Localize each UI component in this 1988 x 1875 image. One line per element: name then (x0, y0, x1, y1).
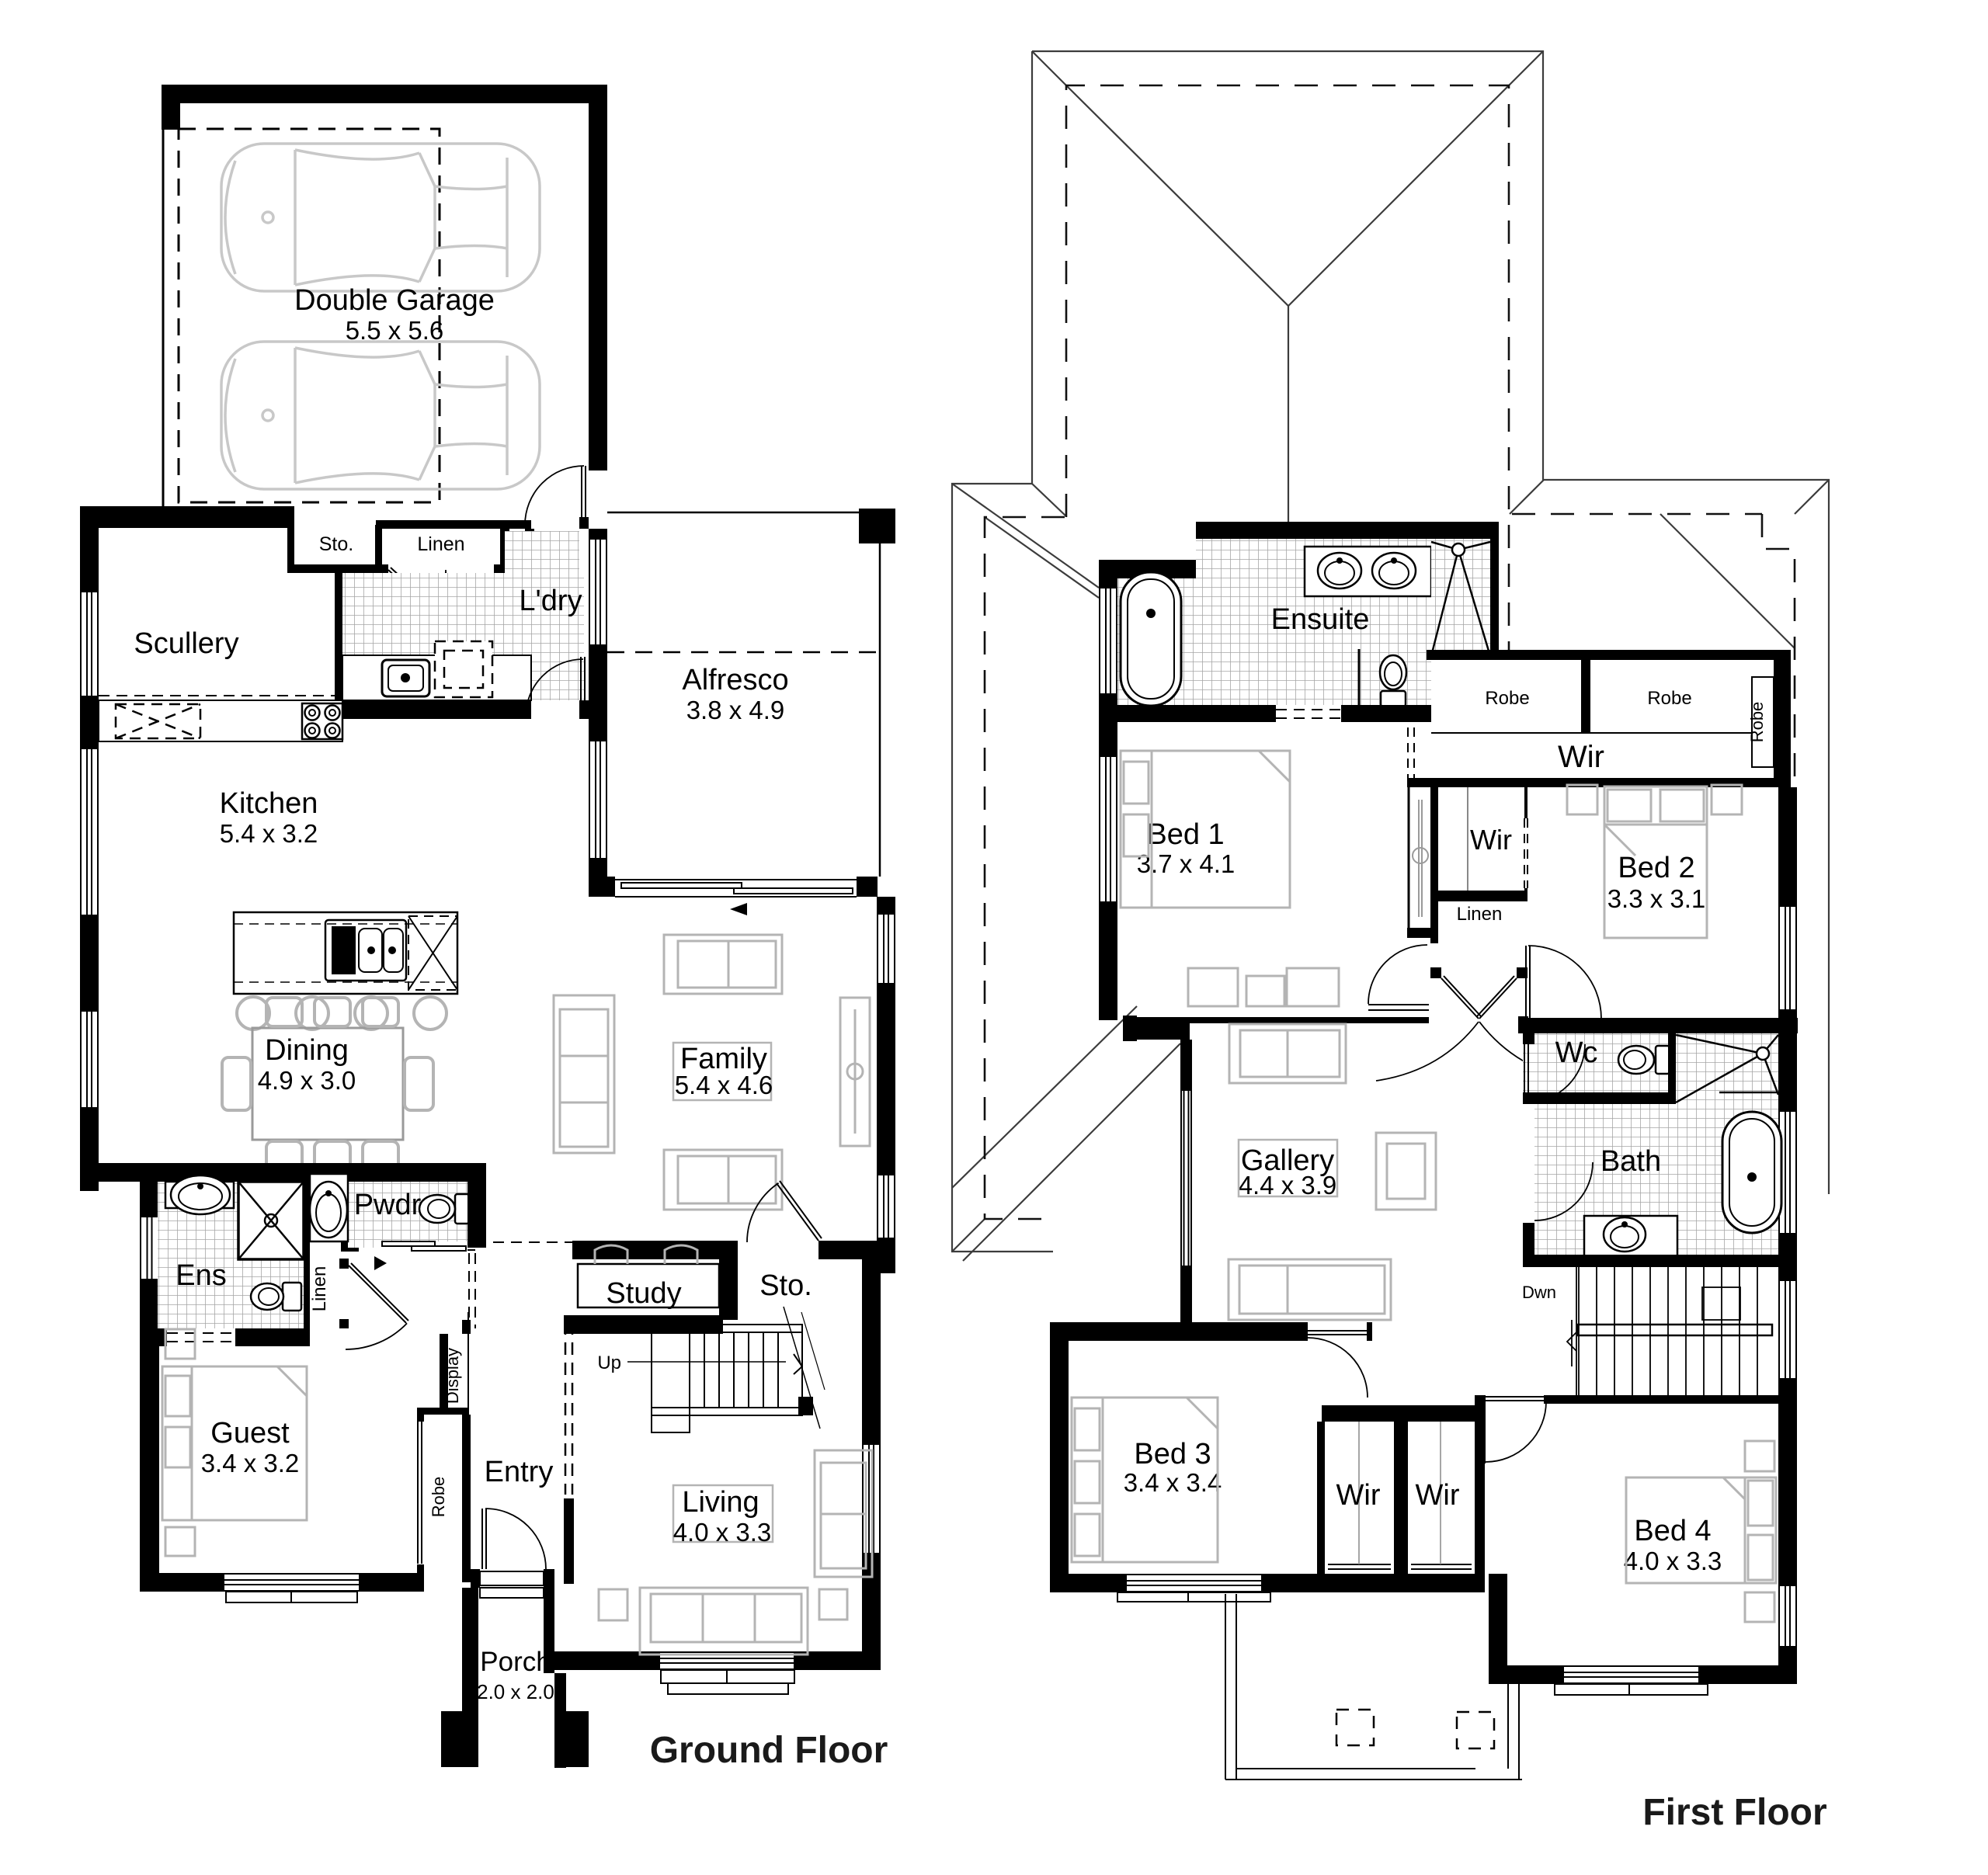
svg-text:4.9 x 3.0: 4.9 x 3.0 (258, 1066, 356, 1095)
svg-text:Linen: Linen (417, 533, 464, 555)
svg-text:Wir: Wir (1336, 1479, 1381, 1512)
svg-text:Bed 1: Bed 1 (1147, 818, 1224, 851)
svg-text:Alfresco: Alfresco (682, 664, 788, 696)
svg-text:3.8 x 4.9: 3.8 x 4.9 (686, 696, 785, 724)
svg-text:Bath: Bath (1600, 1145, 1661, 1178)
svg-text:Dwn: Dwn (1522, 1283, 1556, 1302)
svg-text:5.4 x 3.2: 5.4 x 3.2 (220, 819, 318, 848)
svg-text:Double Garage: Double Garage (294, 284, 495, 317)
svg-text:Sto.: Sto. (759, 1269, 812, 1302)
svg-text:Entry: Entry (485, 1456, 554, 1488)
svg-text:Robe: Robe (1747, 702, 1767, 743)
svg-text:3.4 x 3.4: 3.4 x 3.4 (1124, 1468, 1222, 1497)
svg-text:4.4 x 3.9: 4.4 x 3.9 (1239, 1171, 1337, 1200)
svg-text:Porch: Porch (480, 1647, 551, 1677)
svg-text:3.4 x 3.2: 3.4 x 3.2 (201, 1449, 300, 1477)
svg-text:Dining: Dining (265, 1034, 349, 1067)
svg-text:2.0 x 2.0: 2.0 x 2.0 (477, 1680, 554, 1703)
svg-text:5.5 x 5.6: 5.5 x 5.6 (346, 316, 444, 345)
svg-text:Scullery: Scullery (134, 627, 238, 660)
svg-text:5.4 x 4.6: 5.4 x 4.6 (675, 1071, 773, 1099)
svg-text:Wir: Wir (1470, 824, 1512, 856)
svg-text:Sto.: Sto. (319, 533, 353, 555)
svg-text:Wir: Wir (1416, 1479, 1460, 1512)
svg-text:Ground Floor: Ground Floor (650, 1730, 888, 1771)
svg-text:Living: Living (682, 1486, 759, 1519)
svg-text:Robe: Robe (1485, 688, 1529, 709)
svg-text:Bed 3: Bed 3 (1134, 1438, 1211, 1470)
svg-text:Guest: Guest (210, 1417, 290, 1450)
svg-text:Study: Study (606, 1277, 681, 1310)
svg-text:Ens: Ens (176, 1259, 226, 1292)
svg-text:Bed 4: Bed 4 (1634, 1515, 1711, 1547)
svg-text:Display: Display (443, 1348, 462, 1404)
svg-text:Ensuite: Ensuite (1271, 603, 1370, 636)
svg-text:Linen: Linen (309, 1266, 330, 1312)
svg-text:4.0 x 3.3: 4.0 x 3.3 (1624, 1547, 1722, 1575)
svg-text:Robe: Robe (1647, 688, 1691, 709)
svg-text:Pwdr: Pwdr (354, 1189, 422, 1221)
svg-text:First Floor: First Floor (1642, 1792, 1826, 1833)
svg-text:4.0 x 3.3: 4.0 x 3.3 (673, 1518, 772, 1547)
svg-text:3.3 x 3.1: 3.3 x 3.1 (1607, 884, 1706, 913)
svg-text:Up: Up (597, 1352, 621, 1373)
svg-text:Robe: Robe (429, 1477, 448, 1518)
svg-text:Wc: Wc (1555, 1036, 1598, 1069)
svg-text:Kitchen: Kitchen (220, 787, 318, 820)
svg-text:L'dry: L'dry (519, 585, 582, 617)
svg-text:Wir: Wir (1558, 740, 1604, 774)
svg-text:Bed 2: Bed 2 (1618, 852, 1694, 884)
svg-text:Linen: Linen (1457, 904, 1503, 925)
